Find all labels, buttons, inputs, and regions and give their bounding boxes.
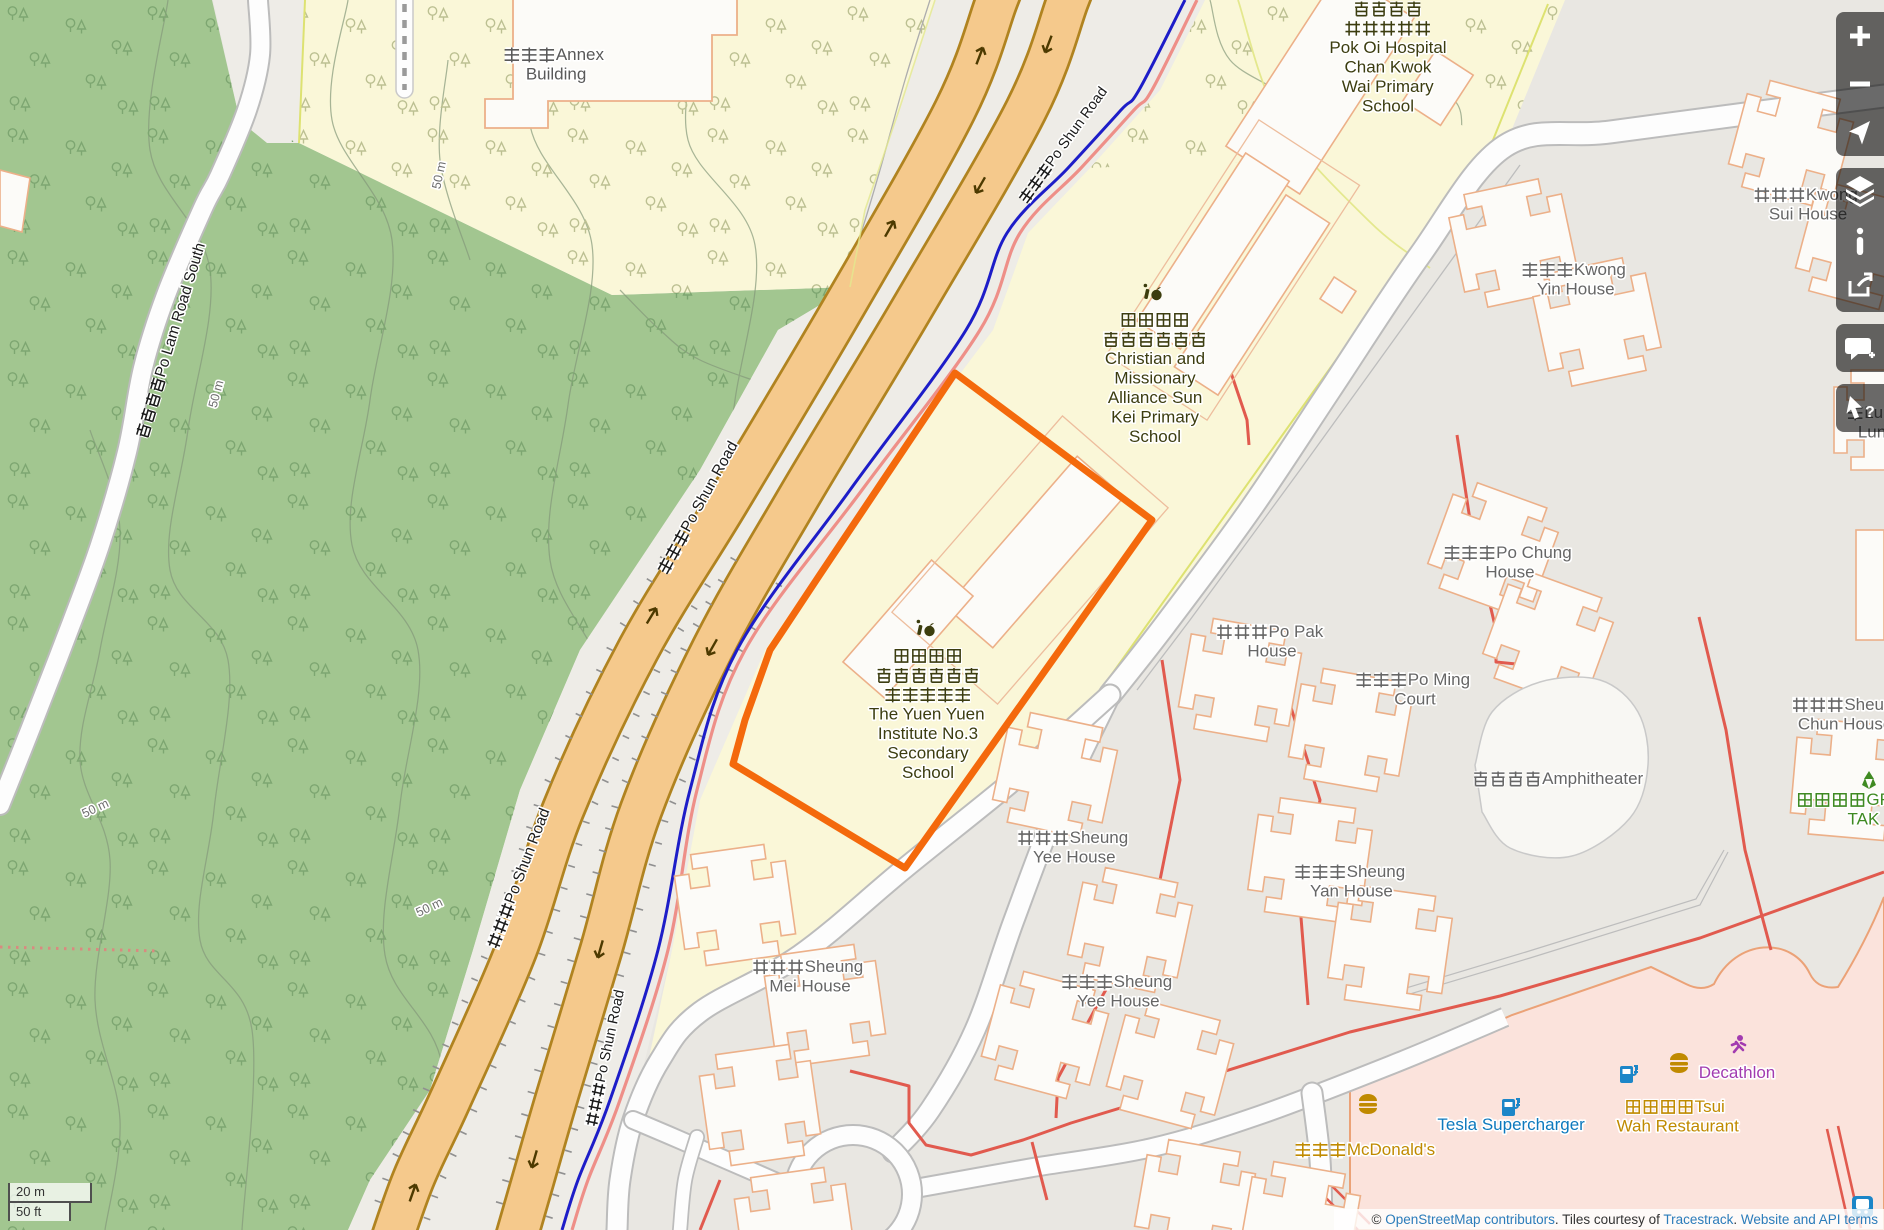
svg-text:Missionary: Missionary: [1114, 369, 1196, 388]
svg-text:Sheung: Sheung: [805, 957, 864, 976]
svg-text:Yee House: Yee House: [1077, 992, 1160, 1011]
svg-text:School: School: [1129, 427, 1181, 446]
svg-text:Wai Primary: Wai Primary: [1342, 77, 1434, 96]
svg-text:TAK: TAK: [1848, 810, 1880, 829]
svg-text:Alliance Sun: Alliance Sun: [1108, 388, 1203, 407]
svg-text:Building: Building: [526, 65, 587, 84]
svg-text:Yin House: Yin House: [1537, 280, 1615, 299]
svg-text:House: House: [1485, 563, 1534, 582]
svg-text:School: School: [1362, 97, 1414, 116]
svg-text:Secondary: Secondary: [887, 744, 969, 763]
svg-text:McDonald's: McDonald's: [1347, 1140, 1435, 1159]
svg-text:Po Chung: Po Chung: [1496, 543, 1572, 562]
svg-text:Court: Court: [1394, 690, 1436, 709]
svg-text:GREEN: GREEN: [1866, 790, 1884, 809]
svg-text:Sheun: Sheun: [1844, 695, 1884, 714]
svg-text:The Yuen Yuen: The Yuen Yuen: [869, 705, 985, 724]
svg-text:Yan House: Yan House: [1310, 882, 1393, 901]
svg-text:Mei House: Mei House: [769, 977, 850, 996]
svg-text:Po Ming: Po Ming: [1408, 670, 1470, 689]
svg-text:Sheung: Sheung: [1347, 862, 1406, 881]
svg-text:Yee House: Yee House: [1033, 848, 1116, 867]
svg-text:Christian and: Christian and: [1105, 349, 1205, 368]
svg-text:Sheung: Sheung: [1070, 828, 1129, 847]
svg-text:Chan Kwok: Chan Kwok: [1345, 58, 1432, 77]
svg-text:?: ?: [1865, 404, 1875, 421]
svg-text:Kwong: Kwong: [1574, 260, 1626, 279]
svg-text:School: School: [902, 763, 954, 782]
svg-text:Tesla Supercharger: Tesla Supercharger: [1437, 1115, 1585, 1134]
svg-text:Wah Restaurant: Wah Restaurant: [1617, 1117, 1739, 1136]
svg-text:Tsui: Tsui: [1695, 1097, 1725, 1116]
svg-text:Po Pak: Po Pak: [1269, 622, 1324, 641]
svg-text:Chun House: Chun House: [1798, 715, 1884, 734]
svg-text:Institute No.3: Institute No.3: [878, 724, 978, 743]
svg-text:Kei Primary: Kei Primary: [1111, 408, 1199, 427]
svg-text:Sheung: Sheung: [1114, 972, 1173, 991]
svg-text:Pok Oi Hospital: Pok Oi Hospital: [1329, 38, 1446, 57]
svg-text:Decathlon: Decathlon: [1699, 1063, 1776, 1082]
svg-text:Amphitheater: Amphitheater: [1542, 769, 1643, 788]
svg-text:House: House: [1247, 642, 1296, 661]
svg-text:Annex: Annex: [556, 45, 605, 64]
